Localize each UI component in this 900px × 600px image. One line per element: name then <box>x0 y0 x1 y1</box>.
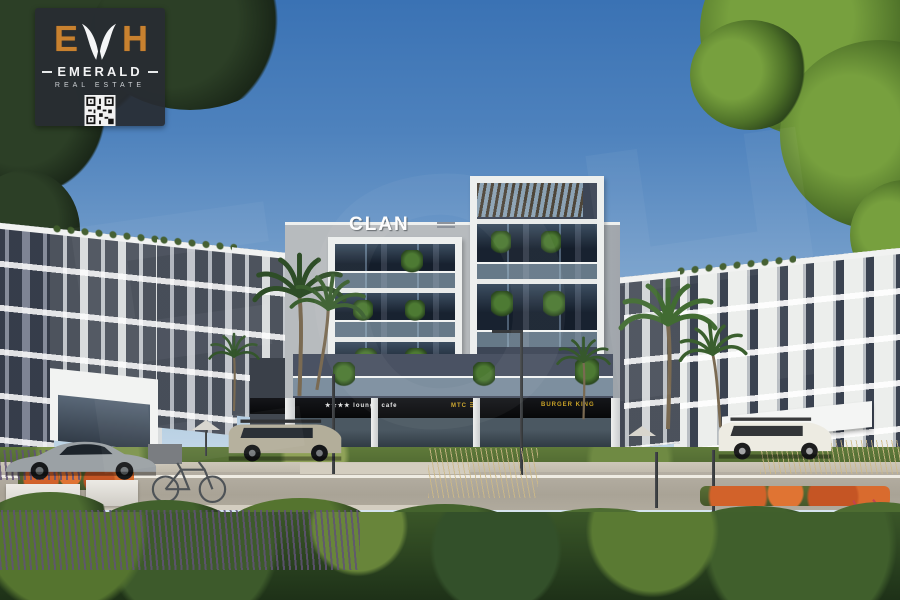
brand-dash-left <box>42 71 52 73</box>
clan-building-sign: CLAN <box>349 214 410 236</box>
brand-name: EMERALD <box>57 64 142 79</box>
logo-letter-e: E <box>54 19 76 59</box>
logo-brand-row: EMERALD <box>42 64 157 79</box>
palm-tree-center-right <box>556 318 611 438</box>
lavender-spikes-foreground <box>0 510 360 570</box>
beige-suv <box>222 416 348 465</box>
logo-emblem-icon <box>80 18 118 60</box>
palm-tree-left-complex <box>208 322 260 422</box>
brand-tagline: REAL ESTATE <box>55 82 145 89</box>
architectural-render: CLAN <box>0 0 900 600</box>
logo-letter-h: H <box>122 19 146 59</box>
tree-canopy-right-inner <box>690 20 810 130</box>
silver-sports-car <box>2 436 160 482</box>
rooftop-pergola <box>477 183 583 217</box>
white-suv <box>712 414 838 463</box>
logo-monogram: E H <box>54 18 146 60</box>
cafe-umbrella-right <box>628 426 656 436</box>
qr-code-icon <box>83 95 117 126</box>
city-bike <box>148 452 230 505</box>
cafe-umbrella-left <box>192 420 220 430</box>
clan-sign-subtext-lines <box>437 222 455 229</box>
emerald-logo-badge: E H EMERALD REAL ESTATE <box>35 8 165 126</box>
street-post <box>655 452 658 508</box>
left-building-near <box>0 222 54 467</box>
street-lamp-arm <box>492 330 522 333</box>
brand-dash-right <box>148 71 158 73</box>
dry-grass-tufts-center <box>428 448 538 498</box>
